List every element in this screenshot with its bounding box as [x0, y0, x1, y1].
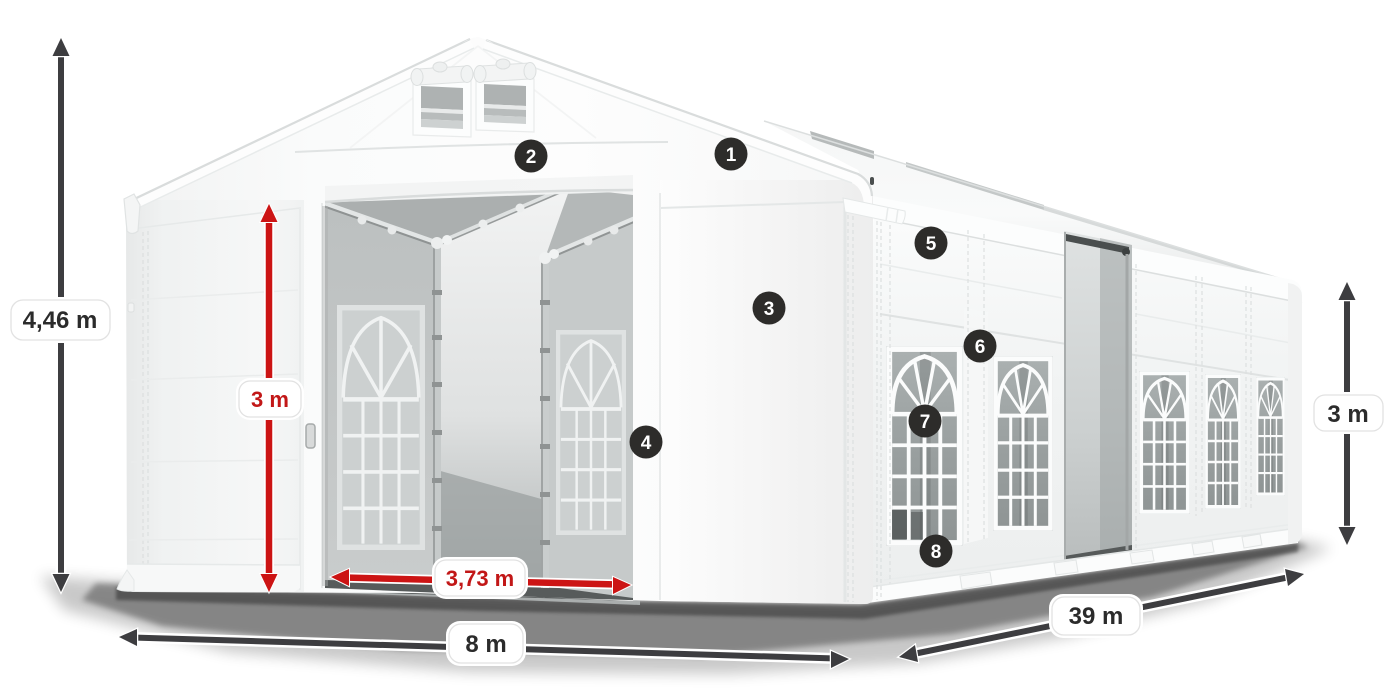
svg-text:8: 8 — [931, 542, 942, 563]
svg-text:8 m: 8 m — [465, 631, 506, 658]
svg-text:3: 3 — [764, 299, 775, 320]
svg-text:39 m: 39 m — [1069, 603, 1124, 630]
svg-text:7: 7 — [920, 412, 931, 433]
svg-text:1: 1 — [726, 145, 737, 166]
svg-text:3 m: 3 m — [1327, 401, 1368, 428]
svg-text:3,73 m: 3,73 m — [446, 566, 515, 591]
svg-text:4,46 m: 4,46 m — [23, 307, 98, 334]
svg-text:6: 6 — [975, 337, 986, 358]
svg-text:2: 2 — [526, 147, 537, 168]
svg-text:5: 5 — [926, 234, 937, 255]
svg-text:3 m: 3 m — [251, 387, 289, 412]
svg-text:4: 4 — [641, 433, 652, 454]
